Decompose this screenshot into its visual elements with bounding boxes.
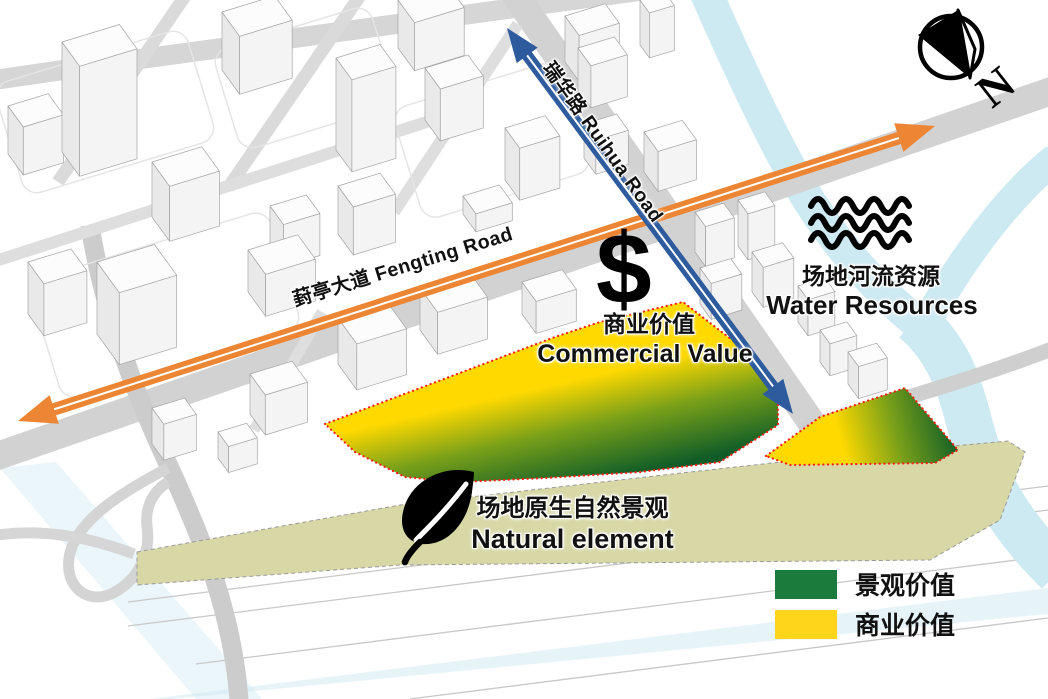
building	[80, 49, 137, 177]
water-resources-label-en: Water Resources	[757, 291, 987, 321]
legend: 景观价值 商业价值	[775, 566, 955, 646]
building	[352, 66, 396, 171]
north-compass-icon: N	[880, 0, 1048, 150]
legend-row-commercial: 商业价值	[775, 606, 955, 642]
legend-swatch-commercial	[775, 610, 837, 639]
legend-label-landscape: 景观价值	[855, 566, 955, 602]
commercial-value-label-zh: 商业价值	[549, 311, 749, 337]
commercial-value-label-en: Commercial Value	[515, 340, 775, 369]
natural-element-label-zh: 场地原生自然景观	[465, 495, 680, 523]
natural-element-label-en: Natural element	[465, 524, 680, 555]
legend-row-landscape: 景观价值	[775, 566, 955, 602]
water-waves-icon	[806, 196, 918, 254]
site-analysis-diagram: 葑亭大道 Fengting Road 瑞华路 Ruihua Road $ 商业价…	[0, 0, 1048, 699]
dollar-icon: $	[596, 212, 652, 327]
legend-label-commercial: 商业价值	[855, 606, 955, 642]
building	[649, 5, 674, 58]
legend-swatch-landscape	[775, 570, 837, 599]
water-resources-label-zh: 场地河流资源	[771, 263, 971, 289]
